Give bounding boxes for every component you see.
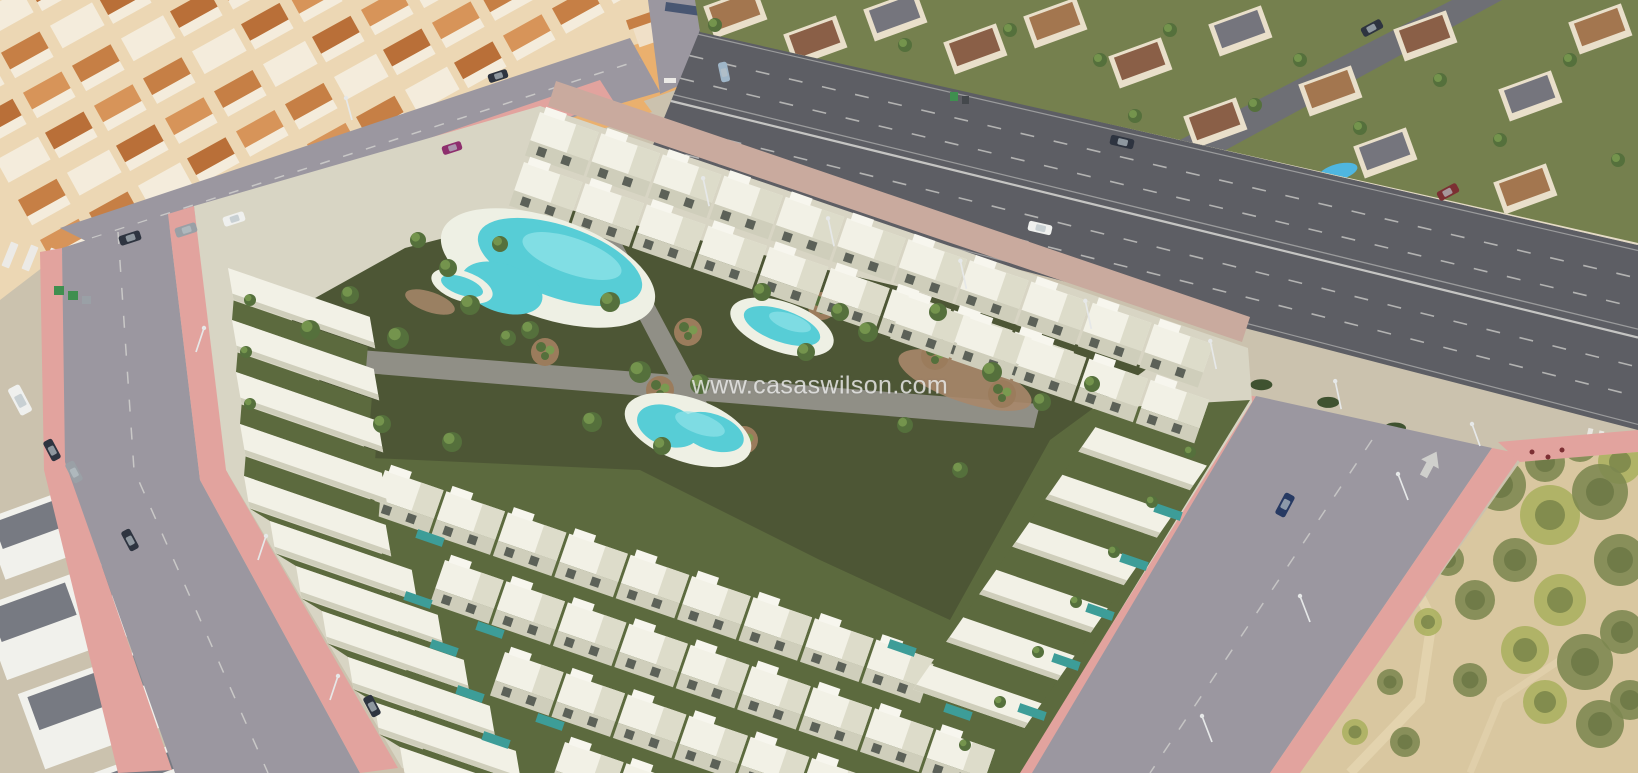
palm-tree bbox=[651, 380, 661, 390]
tree bbox=[653, 437, 671, 455]
tree bbox=[492, 236, 508, 252]
tree bbox=[897, 417, 913, 433]
tree bbox=[1184, 446, 1196, 458]
palm-tree bbox=[1163, 23, 1177, 37]
palm-tree bbox=[1611, 153, 1625, 167]
tree bbox=[929, 303, 947, 321]
palm-tree bbox=[1493, 133, 1507, 147]
tree bbox=[521, 321, 539, 339]
tree bbox=[341, 286, 359, 304]
hedge-bush bbox=[1250, 379, 1272, 390]
crossing-stripe bbox=[664, 78, 676, 83]
tree bbox=[1070, 596, 1082, 608]
planter bbox=[988, 380, 1016, 408]
tree bbox=[753, 283, 771, 301]
tree bbox=[244, 398, 256, 410]
palm-tree bbox=[931, 356, 939, 364]
tree bbox=[442, 432, 462, 452]
recycling-bin bbox=[54, 286, 64, 295]
tree bbox=[410, 232, 426, 248]
tree bbox=[244, 294, 256, 306]
tree bbox=[629, 361, 651, 383]
scene-canvas bbox=[0, 0, 1638, 773]
shrub-dot bbox=[1530, 450, 1535, 455]
palm-tree bbox=[998, 394, 1006, 402]
tree bbox=[373, 415, 391, 433]
palm-tree bbox=[898, 38, 912, 52]
tree bbox=[1108, 546, 1120, 558]
tree bbox=[387, 327, 409, 349]
tree bbox=[460, 295, 480, 315]
tree bbox=[994, 696, 1006, 708]
palm-tree bbox=[1563, 53, 1577, 67]
tree bbox=[831, 303, 849, 321]
palm-tree bbox=[1128, 109, 1142, 123]
aerial-development-render: www.casaswilson.com bbox=[0, 0, 1638, 773]
shrub-dot bbox=[1560, 448, 1565, 453]
tree bbox=[1146, 496, 1158, 508]
palm-tree bbox=[1353, 121, 1367, 135]
palm-tree bbox=[541, 352, 549, 360]
tree bbox=[240, 346, 252, 358]
waste-bin bbox=[962, 96, 969, 104]
palm-tree bbox=[708, 18, 722, 32]
waste-bin bbox=[82, 296, 91, 304]
tree bbox=[982, 362, 1002, 382]
planter bbox=[674, 318, 702, 346]
hedge-bush bbox=[1317, 397, 1339, 408]
palm-tree bbox=[1248, 98, 1262, 112]
palm-tree bbox=[1433, 73, 1447, 87]
palm-tree bbox=[1293, 53, 1307, 67]
tree bbox=[300, 320, 320, 340]
recycling-bin bbox=[950, 92, 958, 101]
palm-tree bbox=[1093, 53, 1107, 67]
tree bbox=[439, 259, 457, 277]
tree bbox=[1084, 376, 1100, 392]
planter bbox=[531, 338, 559, 366]
tree bbox=[797, 343, 815, 361]
recycling-bin bbox=[68, 291, 78, 300]
palm-tree bbox=[684, 332, 692, 340]
tree bbox=[959, 739, 971, 751]
tree bbox=[1032, 646, 1044, 658]
tree bbox=[500, 330, 516, 346]
palm-tree bbox=[1003, 23, 1017, 37]
tree bbox=[690, 374, 710, 394]
shrub-dot bbox=[1546, 455, 1551, 460]
palm-tree bbox=[679, 322, 689, 332]
tree bbox=[858, 322, 878, 342]
tree bbox=[582, 412, 602, 432]
palm-tree bbox=[536, 342, 546, 352]
tree bbox=[1033, 393, 1051, 411]
tree bbox=[952, 462, 968, 478]
palm-tree bbox=[993, 384, 1003, 394]
tree bbox=[600, 292, 620, 312]
